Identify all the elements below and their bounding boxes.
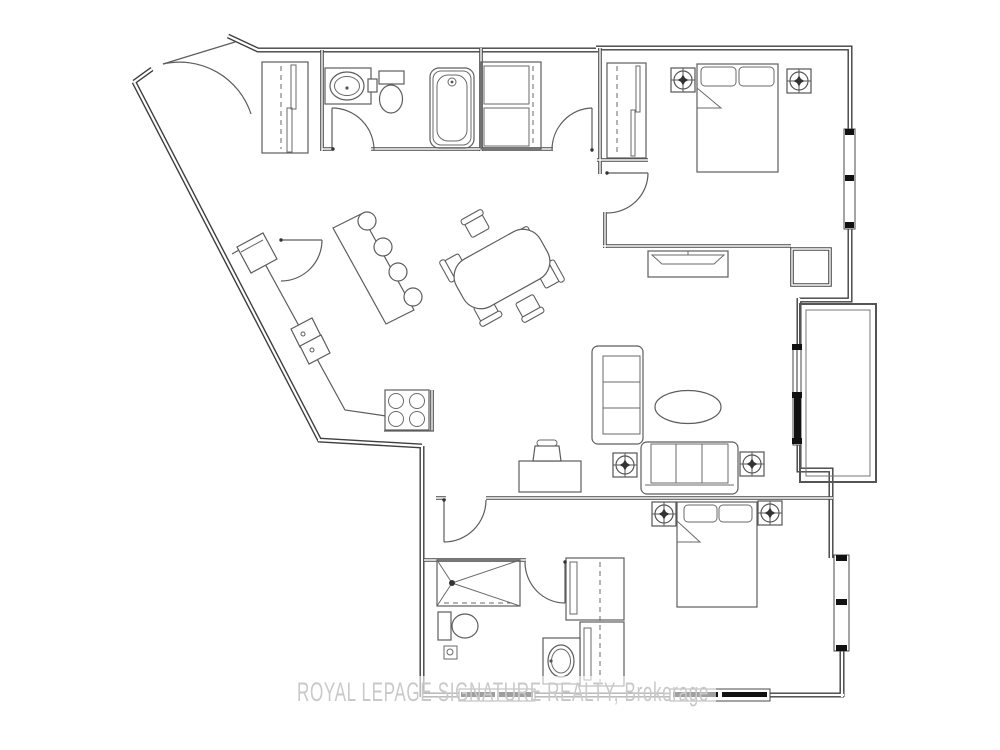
hallway-door	[552, 108, 594, 152]
tv-console	[648, 251, 728, 277]
pillow	[701, 67, 736, 86]
loveseat	[592, 346, 643, 444]
ceiling-light	[652, 502, 676, 526]
laundry-closet	[481, 62, 541, 149]
bar-stool	[374, 238, 392, 256]
ceiling-light	[671, 68, 695, 92]
watermark: ROYAL LEPAGE SIGNATURE REALTY, Brokerage	[292, 676, 716, 708]
bed-2	[677, 502, 757, 607]
pillow	[719, 505, 752, 522]
toilet	[368, 71, 404, 113]
ceiling-light	[787, 69, 811, 93]
bed-1	[697, 64, 778, 172]
bedroom-1	[605, 63, 811, 213]
desk-chair	[533, 440, 561, 461]
watermark-text: ROYAL LEPAGE SIGNATURE REALTY, Brokerage	[297, 677, 709, 707]
floor-plan: ROYAL LEPAGE SIGNATURE REALTY, Brokerage	[0, 0, 1000, 750]
slider-panel	[794, 398, 801, 440]
bathtub	[430, 68, 474, 148]
balcony-sliding-door	[792, 344, 802, 445]
pillow	[739, 67, 774, 86]
floor-plan-page: ROYAL LEPAGE SIGNATURE REALTY, Brokerage	[0, 0, 1000, 750]
shower	[437, 560, 520, 606]
bar-stool	[358, 212, 376, 230]
dining-chair	[460, 209, 491, 239]
bar-stool	[389, 263, 407, 281]
ceiling-light	[613, 453, 637, 477]
bedroom2-side-window	[834, 555, 849, 651]
floor-fixture	[444, 646, 457, 659]
kitchen-island	[333, 212, 422, 324]
pillow	[684, 505, 717, 522]
kitchen	[232, 212, 429, 430]
desk	[519, 440, 581, 492]
dining-table	[447, 222, 557, 316]
dining-chair	[514, 293, 545, 323]
entry-door	[163, 42, 251, 114]
hallway	[552, 108, 594, 152]
bedroom1-window	[844, 129, 855, 229]
cooktop	[385, 390, 429, 430]
bathroom1-door	[331, 108, 374, 151]
double-sink	[291, 318, 330, 364]
washer	[484, 66, 529, 104]
coffee-table	[655, 391, 721, 424]
sofa	[641, 442, 738, 494]
dining-area	[439, 209, 565, 327]
fridge	[237, 233, 277, 273]
bathroom2-door	[525, 560, 567, 603]
foyer-closet	[262, 62, 308, 153]
foyer	[163, 42, 308, 153]
bar-stool	[404, 288, 422, 306]
ceiling-light	[758, 501, 782, 525]
vanity-sink	[325, 68, 371, 104]
bedroom1-door	[605, 171, 648, 213]
bedroom1-niche	[792, 249, 830, 285]
bedroom-2	[566, 501, 782, 686]
exterior-walls	[134, 36, 850, 697]
second-bathroom	[437, 560, 580, 684]
windows	[459, 129, 855, 701]
dryer	[484, 108, 529, 146]
main-bathroom	[325, 68, 474, 151]
pantry-door	[279, 238, 322, 281]
toilet-2	[438, 612, 478, 640]
balcony-railing	[800, 304, 876, 482]
ceiling-light	[740, 452, 764, 476]
balcony	[800, 304, 876, 482]
bedroom2-zone-door	[442, 498, 486, 542]
bedroom1-closet	[607, 63, 646, 158]
